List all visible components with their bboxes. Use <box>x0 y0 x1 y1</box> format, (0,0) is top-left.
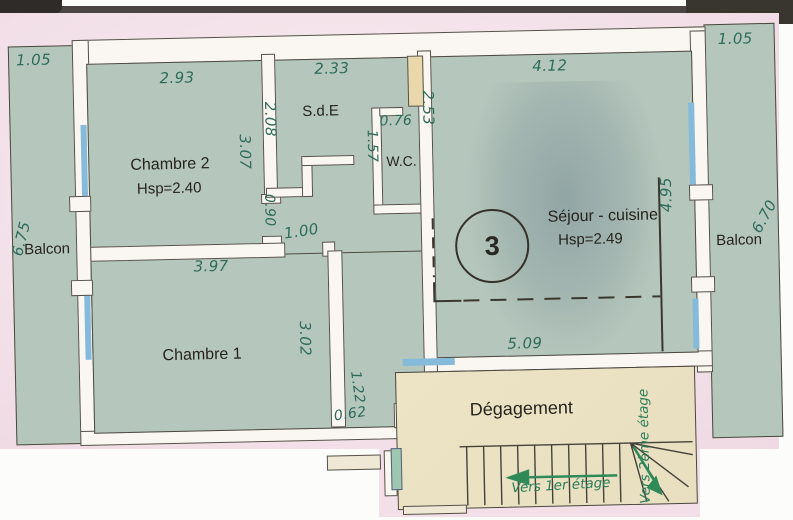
balcony-door-jamb <box>69 196 91 212</box>
dim-door-chambre2: 0.90 <box>261 194 278 227</box>
label-balcon-right: Balcon <box>716 231 762 249</box>
lot-number: 3 <box>484 230 500 261</box>
label-wc: W.C. <box>386 153 417 170</box>
dim-sejour-depth-right: 4.95 <box>657 177 676 212</box>
dim-sde-width: 2.33 <box>314 59 349 78</box>
dim-sejour-bottom: 5.09 <box>507 334 542 353</box>
label-sde: S.d.E <box>302 102 339 120</box>
dim-sejour-depth-left: 2.53 <box>419 90 438 125</box>
floorplan-drawing: 3 Chambre 2 Hsp=2.40 S.d.E W.C. Séjour -… <box>0 0 793 520</box>
label-chambre2: Chambre 2 <box>130 155 210 175</box>
landing-threshold <box>403 505 467 515</box>
dim-balcon-right-width: 1.05 <box>718 29 753 48</box>
dim-chambre1-depth: 3.02 <box>296 321 315 356</box>
label-stairs-to-second-floor: Vers 2ème étage <box>635 389 654 504</box>
wall-sde-bottom <box>301 155 354 166</box>
label-chambre1: Chambre 1 <box>162 346 242 366</box>
dim-chambre1-width: 3.97 <box>193 257 228 276</box>
window-transom-degagement <box>403 358 455 366</box>
dim-wc-width: 0.76 <box>379 113 412 130</box>
dim-wc-depth: 1.57 <box>364 129 381 162</box>
dim-chambre2-width: 2.93 <box>159 68 194 87</box>
dim-chambre2-depth: 3.07 <box>236 134 255 169</box>
balcony-door-jamb <box>71 280 93 296</box>
floorplan-photo: 3 Chambre 2 Hsp=2.40 S.d.E W.C. Séjour -… <box>0 0 793 520</box>
entry-door-leaf <box>391 448 403 490</box>
window-sejour-lower <box>692 299 699 349</box>
label-sejour-hsp: Hsp=2.49 <box>558 230 623 248</box>
landing-step <box>327 454 381 470</box>
dim-balcon-left-width: 1.05 <box>16 51 51 70</box>
label-sejour: Séjour - cuisine <box>547 206 658 226</box>
label-degagement: Dégagement <box>470 397 574 420</box>
apartment-floor-lower <box>90 251 427 434</box>
label-chambre2-hsp: Hsp=2.40 <box>137 179 202 197</box>
balcony-door-jamb <box>689 184 713 201</box>
label-balcon-left: Balcon <box>24 240 70 258</box>
dim-sde-depth: 2.08 <box>261 102 280 137</box>
dim-sejour-width: 4.12 <box>532 56 567 75</box>
balcony-door-jamb <box>691 276 715 293</box>
